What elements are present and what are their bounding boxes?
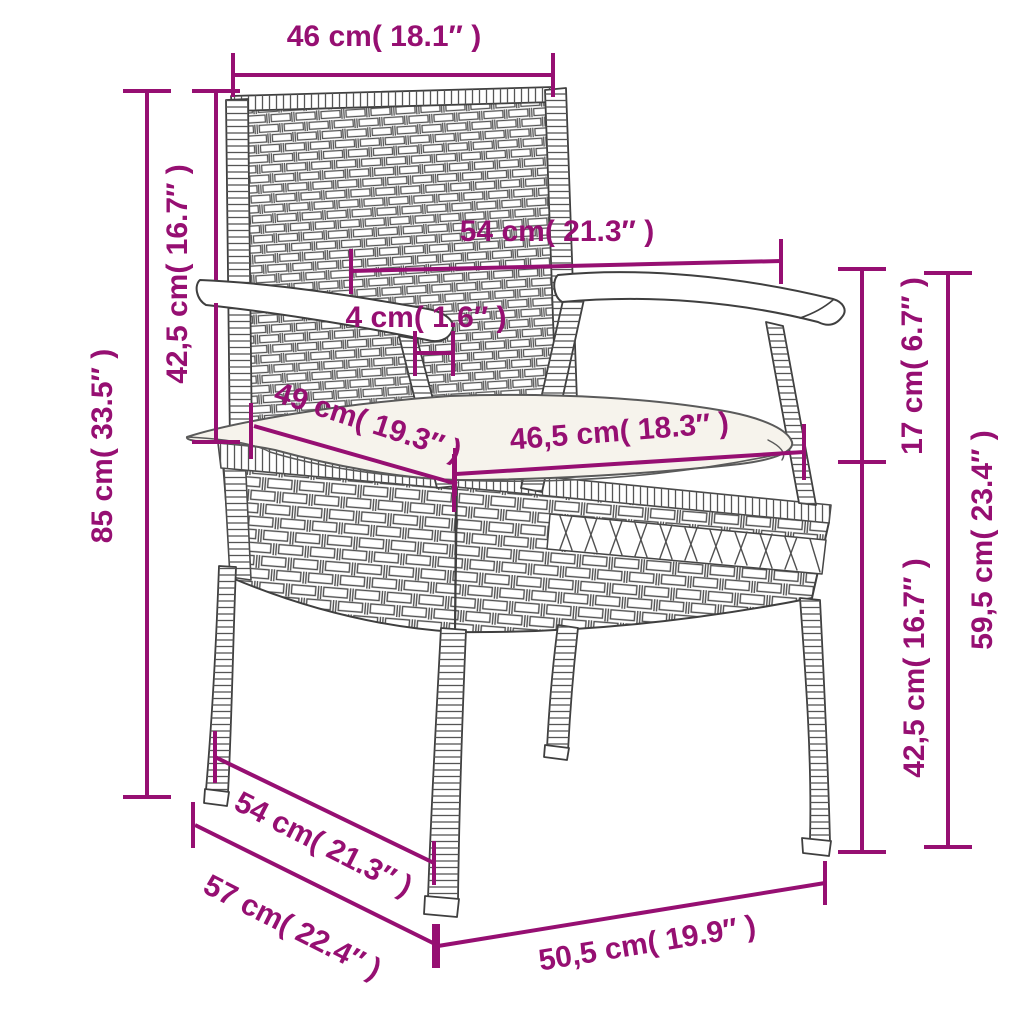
svg-text:85 cm( 33.5″ ): 85 cm( 33.5″ ) bbox=[86, 349, 119, 543]
svg-text:17 cm( 6.7″ ): 17 cm( 6.7″ ) bbox=[896, 277, 929, 455]
svg-text:59,5 cm( 23.4″ ): 59,5 cm( 23.4″ ) bbox=[966, 430, 999, 650]
svg-text:46 cm( 18.1″ ): 46 cm( 18.1″ ) bbox=[287, 20, 481, 53]
svg-text:42,5 cm( 16.7″ ): 42,5 cm( 16.7″ ) bbox=[898, 558, 931, 778]
svg-text:4 cm( 1.6″ ): 4 cm( 1.6″ ) bbox=[345, 301, 506, 334]
svg-text:54 cm( 21.3″ ): 54 cm( 21.3″ ) bbox=[460, 215, 654, 248]
svg-text:42,5 cm( 16.7″ ): 42,5 cm( 16.7″ ) bbox=[161, 164, 194, 384]
